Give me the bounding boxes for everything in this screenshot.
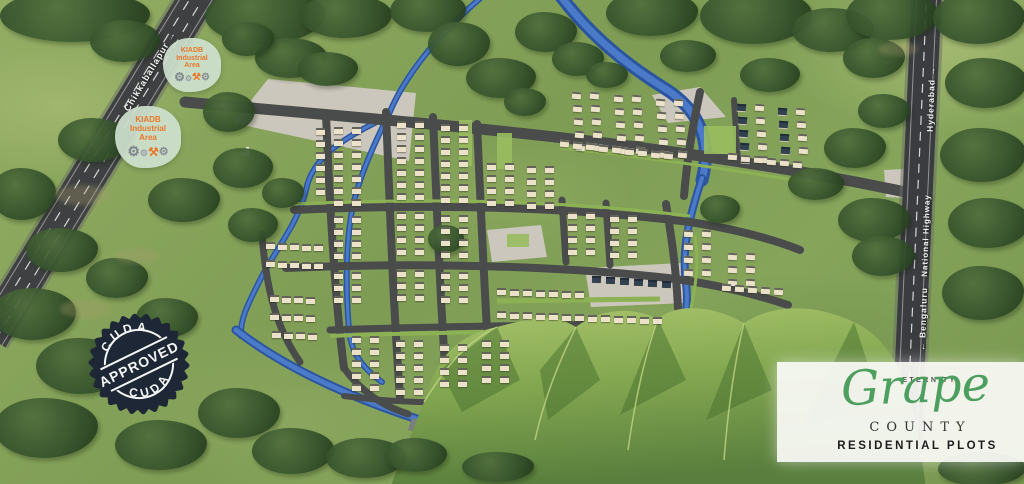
badge-line: Area — [139, 134, 157, 143]
green-verges — [294, 148, 800, 336]
plot-house — [617, 134, 627, 142]
tree-cluster — [948, 198, 1024, 248]
plot-house — [415, 145, 424, 152]
plot-house — [352, 199, 361, 206]
plot-house — [620, 278, 629, 285]
plot-house — [612, 146, 622, 154]
plot-house — [500, 340, 509, 347]
plot-house — [656, 99, 666, 107]
plot-house — [659, 138, 669, 146]
plot-house — [505, 187, 514, 194]
badge-line: KIADB — [181, 47, 203, 55]
plot-house — [487, 163, 496, 170]
plot-house — [615, 108, 625, 116]
plot-house — [628, 239, 637, 246]
plot-house — [441, 148, 450, 155]
plot-house — [415, 224, 424, 231]
plot-house — [758, 143, 767, 151]
plot-house — [397, 236, 406, 243]
plot-house — [545, 166, 554, 173]
project-name: Grape — [776, 355, 1024, 420]
plot-house — [459, 272, 468, 279]
plot-house — [415, 282, 424, 289]
plot-house — [441, 172, 450, 179]
plot-house — [459, 251, 468, 258]
plot-house — [651, 150, 661, 158]
plot-house — [796, 108, 805, 116]
wrench-icon: ⚒ — [148, 146, 159, 158]
plot-house — [441, 196, 450, 203]
plot-house — [334, 284, 343, 291]
plot-house — [278, 243, 287, 250]
plot-house — [797, 121, 806, 129]
dirt-patch — [878, 42, 918, 56]
plot-house — [634, 279, 643, 286]
plot-house — [397, 121, 406, 128]
plot-house — [459, 239, 468, 246]
gear-icon: ⚙ — [140, 149, 148, 158]
plot-house — [441, 124, 450, 131]
plot-house — [441, 284, 450, 291]
plot-house — [675, 112, 685, 120]
plot-house — [510, 289, 519, 296]
plot-house — [282, 296, 291, 303]
plot-house — [415, 181, 424, 188]
plot-house — [487, 187, 496, 194]
plot-house — [780, 134, 789, 142]
plot-house — [523, 289, 532, 296]
plot-house — [774, 288, 783, 295]
plot-house — [414, 352, 423, 359]
plot-house — [266, 242, 275, 249]
plot-house — [684, 230, 693, 237]
plot-house — [573, 105, 583, 113]
wrench-icon: ⚒ — [192, 73, 201, 83]
plot-house — [527, 178, 536, 185]
plot-house — [632, 95, 642, 103]
plot-house — [397, 212, 406, 219]
plot-house — [586, 236, 595, 243]
plot-house — [505, 163, 514, 170]
masterplan-map: Chikkaballapur → Hyderabad → National Hi… — [0, 0, 1024, 484]
plot-house — [755, 104, 764, 112]
plot-house — [648, 280, 657, 287]
plot-house — [568, 212, 577, 219]
plot-house — [397, 157, 406, 164]
plot-house — [779, 121, 788, 129]
plot-house — [441, 296, 450, 303]
plot-house — [601, 315, 610, 322]
plot-house — [441, 160, 450, 167]
plot-house — [575, 291, 584, 298]
plot-house — [352, 372, 361, 379]
plot-house — [545, 178, 554, 185]
plot-house — [414, 340, 423, 347]
plot-house — [545, 202, 554, 209]
plot-house — [440, 356, 449, 363]
plot-house — [302, 244, 311, 251]
plot-house — [352, 336, 361, 343]
plot-house — [334, 187, 343, 194]
plot-house — [352, 151, 361, 158]
plot-house — [397, 133, 406, 140]
plot-house — [702, 243, 711, 250]
plot-house — [780, 159, 789, 167]
plot-house — [441, 136, 450, 143]
plot-house — [500, 364, 509, 371]
plot-house — [370, 372, 379, 379]
plot-house — [414, 376, 423, 383]
plot-house — [728, 266, 737, 273]
plot-house — [633, 108, 643, 116]
plot-house — [459, 284, 468, 291]
plot-house — [610, 239, 619, 246]
plot-house — [334, 163, 343, 170]
plot-house — [334, 240, 343, 247]
plot-house — [702, 256, 711, 263]
plot-house — [316, 152, 325, 159]
plot-house — [316, 128, 325, 135]
plot-house — [482, 364, 491, 371]
gear-icon: ⚙ — [159, 147, 169, 158]
plot-house — [676, 125, 686, 133]
plot-house — [781, 147, 790, 155]
plot-house — [352, 175, 361, 182]
plot-house — [352, 187, 361, 194]
plot-house — [606, 277, 615, 284]
plot-house — [415, 133, 424, 140]
plot-house — [586, 212, 595, 219]
plot-house — [658, 125, 668, 133]
plot-house — [500, 376, 509, 383]
industrial-area-badge: KIADB Industrial Area ⚙ ⚙ ⚒ ⚙ — [115, 106, 181, 168]
plot-house — [352, 139, 361, 146]
plot-house — [527, 166, 536, 173]
plot-house — [415, 248, 424, 255]
plot-house — [568, 248, 577, 255]
plot-house — [586, 248, 595, 255]
plot-house — [505, 199, 514, 206]
plot-house — [640, 317, 649, 324]
plot-house — [334, 139, 343, 146]
plot-house — [459, 296, 468, 303]
plot-house — [370, 348, 379, 355]
plot-house — [459, 124, 468, 131]
plot-house — [588, 315, 597, 322]
plot-house — [482, 376, 491, 383]
plot-house — [334, 151, 343, 158]
plot-house — [316, 188, 325, 195]
plot-house — [586, 143, 596, 151]
industry-icons: ⚙ ⚙ ⚒ ⚙ — [174, 71, 210, 83]
plot-house — [306, 315, 315, 322]
plot-house — [334, 252, 343, 259]
plot-house — [352, 127, 361, 134]
plot-house — [352, 384, 361, 391]
plot-house — [505, 175, 514, 182]
plot-house — [614, 316, 623, 323]
plot-house — [737, 104, 746, 112]
plot-house — [487, 175, 496, 182]
plot-house — [459, 184, 468, 191]
plot-house — [702, 269, 711, 276]
plot-house — [270, 295, 279, 302]
plot-house — [592, 276, 601, 283]
plot-house — [294, 314, 303, 321]
plot-house — [440, 380, 449, 387]
plot-house — [628, 227, 637, 234]
plot-house — [536, 313, 545, 320]
plot-house — [316, 164, 325, 171]
dirt-patch — [55, 185, 110, 205]
plot-house — [757, 130, 766, 138]
plot-house — [627, 316, 636, 323]
plot-house — [397, 248, 406, 255]
plot-house — [510, 312, 519, 319]
plot-house — [722, 284, 731, 291]
plot-house — [536, 290, 545, 297]
plot-house — [396, 340, 405, 347]
plot-house — [352, 228, 361, 235]
plot-house — [684, 269, 693, 276]
plot-house — [628, 251, 637, 258]
plot-house — [610, 215, 619, 222]
plot-house — [370, 360, 379, 367]
plot-house — [414, 388, 423, 395]
project-name-suffix: COUNTY — [777, 420, 1024, 435]
plot-house — [592, 118, 602, 126]
badge-line: Industrial — [176, 55, 208, 63]
plot-house — [415, 169, 424, 176]
plot-house — [458, 380, 467, 387]
plot-house — [334, 272, 343, 279]
plot-house — [396, 376, 405, 383]
plot-house — [296, 332, 305, 339]
plot-house — [756, 117, 765, 125]
plot-house — [441, 239, 450, 246]
plot-house — [754, 156, 763, 164]
plot-house — [568, 224, 577, 231]
plot-house — [415, 236, 424, 243]
plot-house — [272, 331, 281, 338]
plot-house — [334, 216, 343, 223]
plot-house — [334, 228, 343, 235]
plot-house — [334, 199, 343, 206]
plot-house — [573, 141, 583, 149]
plot-house — [352, 163, 361, 170]
plot-house — [284, 332, 293, 339]
industrial-area-badge: KIADB Industrial Area ⚙ ⚙ ⚒ ⚙ — [163, 38, 221, 92]
plot-house — [562, 291, 571, 298]
plot-house — [397, 145, 406, 152]
plot-house — [635, 134, 645, 142]
plot-house — [500, 352, 509, 359]
plot-house — [497, 311, 506, 318]
plot-house — [574, 118, 584, 126]
plot-house — [767, 157, 776, 165]
plot-house — [352, 360, 361, 367]
tree-cluster — [940, 128, 1024, 182]
gear-icon: ⚙ — [201, 73, 210, 83]
plot-house — [440, 344, 449, 351]
plot-house — [610, 227, 619, 234]
plot-house — [370, 384, 379, 391]
project-tagline: RESIDENTIAL PLOTS — [777, 440, 1024, 452]
plot-house — [614, 95, 624, 103]
plot-house — [653, 317, 662, 324]
plot-house — [638, 149, 648, 157]
plot-house — [314, 244, 323, 251]
plot-house — [746, 266, 755, 273]
badge-line: Area — [184, 62, 200, 70]
plot-house — [396, 364, 405, 371]
tree-cluster — [945, 58, 1024, 108]
plot-house — [545, 190, 554, 197]
plot-house — [441, 272, 450, 279]
plot-house — [316, 140, 325, 147]
plot-house — [352, 284, 361, 291]
plot-house — [746, 253, 755, 260]
plot-house — [278, 261, 287, 268]
plot-house — [302, 262, 311, 269]
plot-house — [314, 262, 323, 269]
plot-house — [482, 340, 491, 347]
plot-house — [282, 314, 291, 321]
plot-house — [441, 215, 450, 222]
plot-house — [441, 251, 450, 258]
plot-house — [575, 131, 585, 139]
plot-house — [352, 240, 361, 247]
plot-house — [415, 193, 424, 200]
plot-house — [568, 236, 577, 243]
plot-house — [799, 147, 808, 155]
plot-house — [590, 92, 600, 100]
plot-house — [306, 297, 315, 304]
plot-house — [497, 288, 506, 295]
plot-house — [702, 230, 711, 237]
plot-house — [735, 285, 744, 292]
plot-house — [761, 287, 770, 294]
plot-house — [396, 352, 405, 359]
plot-house — [396, 388, 405, 395]
plot-house — [728, 253, 737, 260]
plot-house — [562, 314, 571, 321]
plot-house — [527, 202, 536, 209]
plot-house — [397, 193, 406, 200]
plot-house — [778, 108, 787, 116]
plot-house — [352, 272, 361, 279]
plot-house — [575, 314, 584, 321]
industry-icons: ⚙ ⚙ ⚒ ⚙ — [127, 144, 168, 158]
plot-house — [415, 121, 424, 128]
plot-house — [414, 364, 423, 371]
plot-house — [352, 252, 361, 259]
project-logo-card: ETERNITY Grape COUNTY RESIDENTIAL PLOTS — [777, 362, 1024, 462]
plot-house — [266, 260, 275, 267]
plot-house — [459, 172, 468, 179]
plot-house — [316, 176, 325, 183]
plot-house — [458, 344, 467, 351]
plot-house — [664, 152, 674, 160]
plot-house — [397, 294, 406, 301]
plot-house — [674, 99, 684, 107]
gear-icon: ⚙ — [174, 71, 185, 83]
plot-house — [728, 153, 737, 161]
plot-house — [334, 296, 343, 303]
plot-house — [487, 199, 496, 206]
plot-house — [334, 175, 343, 182]
plot-house — [739, 130, 748, 138]
plot-house — [458, 356, 467, 363]
plot-house — [662, 281, 671, 288]
plot-house — [415, 212, 424, 219]
plot-house — [798, 134, 807, 142]
plot-house — [290, 261, 299, 268]
plot-house — [599, 144, 609, 152]
plot-house — [397, 224, 406, 231]
plot-house — [549, 313, 558, 320]
plot-house — [634, 121, 644, 129]
plot-house — [684, 256, 693, 263]
plot-house — [625, 147, 635, 155]
plot-house — [793, 160, 802, 168]
plot-house — [459, 148, 468, 155]
plot-house — [748, 286, 757, 293]
plot-house — [740, 143, 749, 151]
plot-house — [593, 131, 603, 139]
plot-house — [677, 138, 687, 146]
plot-house — [560, 140, 570, 148]
plot-house — [415, 294, 424, 301]
plot-house — [294, 296, 303, 303]
plot-house — [741, 154, 750, 162]
plot-house — [415, 157, 424, 164]
plot-house — [459, 227, 468, 234]
plot-house — [482, 352, 491, 359]
plot-house — [370, 336, 379, 343]
plot-house — [523, 312, 532, 319]
plot-house — [352, 296, 361, 303]
plot-house — [527, 190, 536, 197]
plot-house — [572, 92, 582, 100]
plot-house — [397, 270, 406, 277]
plot-house — [678, 151, 688, 159]
dirt-patch — [115, 248, 160, 264]
plot-house — [352, 216, 361, 223]
plot-house — [290, 243, 299, 250]
plot-house — [586, 224, 595, 231]
plot-house — [591, 105, 601, 113]
plot-house — [458, 368, 467, 375]
gear-icon: ⚙ — [127, 144, 140, 158]
plot-house — [459, 136, 468, 143]
plot-house — [441, 227, 450, 234]
plot-house — [549, 290, 558, 297]
plot-house — [397, 169, 406, 176]
gear-icon: ⚙ — [185, 75, 192, 83]
plot-house — [459, 160, 468, 167]
plot-house — [440, 368, 449, 375]
plot-house — [441, 184, 450, 191]
plot-house — [415, 270, 424, 277]
plot-house — [352, 348, 361, 355]
plot-house — [616, 121, 626, 129]
plot-house — [459, 196, 468, 203]
plot-house — [657, 112, 667, 120]
plot-house — [610, 251, 619, 258]
plot-house — [628, 215, 637, 222]
plot-house — [459, 215, 468, 222]
